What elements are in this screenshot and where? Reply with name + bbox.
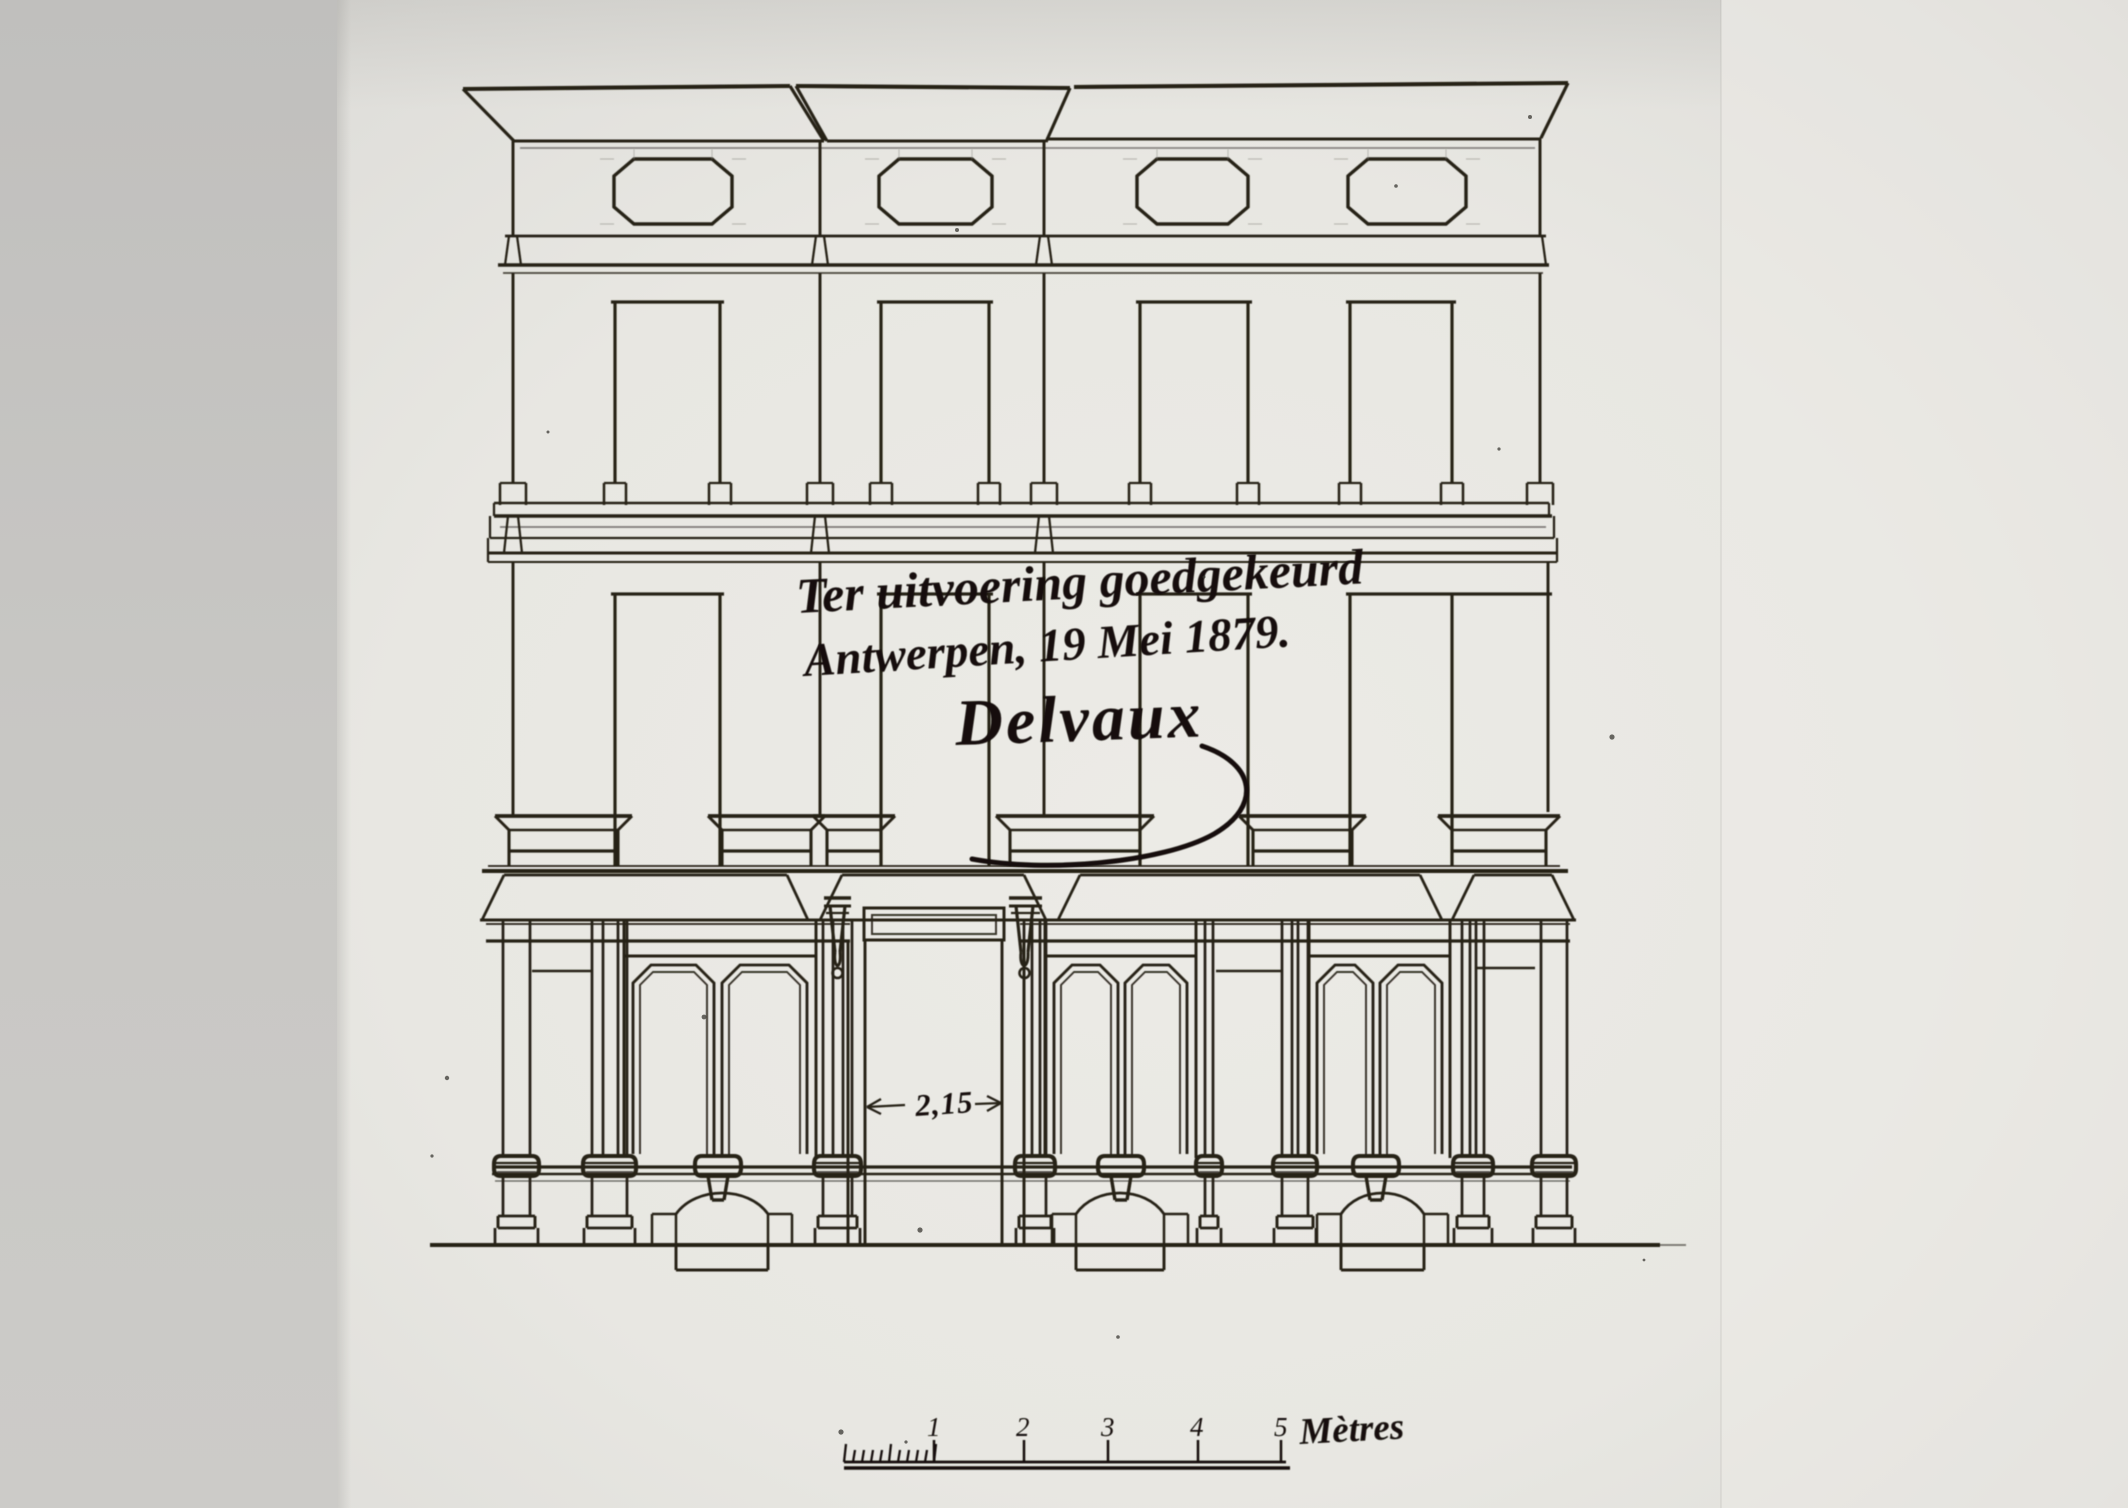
svg-text:Mètres: Mètres xyxy=(1297,1407,1405,1453)
svg-text:1: 1 xyxy=(927,1412,941,1442)
svg-text:Delvaux: Delvaux xyxy=(953,678,1205,760)
svg-text:4: 4 xyxy=(1190,1412,1204,1442)
svg-text:3: 3 xyxy=(1100,1412,1115,1442)
svg-text:2,15: 2,15 xyxy=(913,1084,975,1123)
svg-text:5: 5 xyxy=(1274,1412,1288,1442)
svg-text:2: 2 xyxy=(1016,1412,1030,1442)
